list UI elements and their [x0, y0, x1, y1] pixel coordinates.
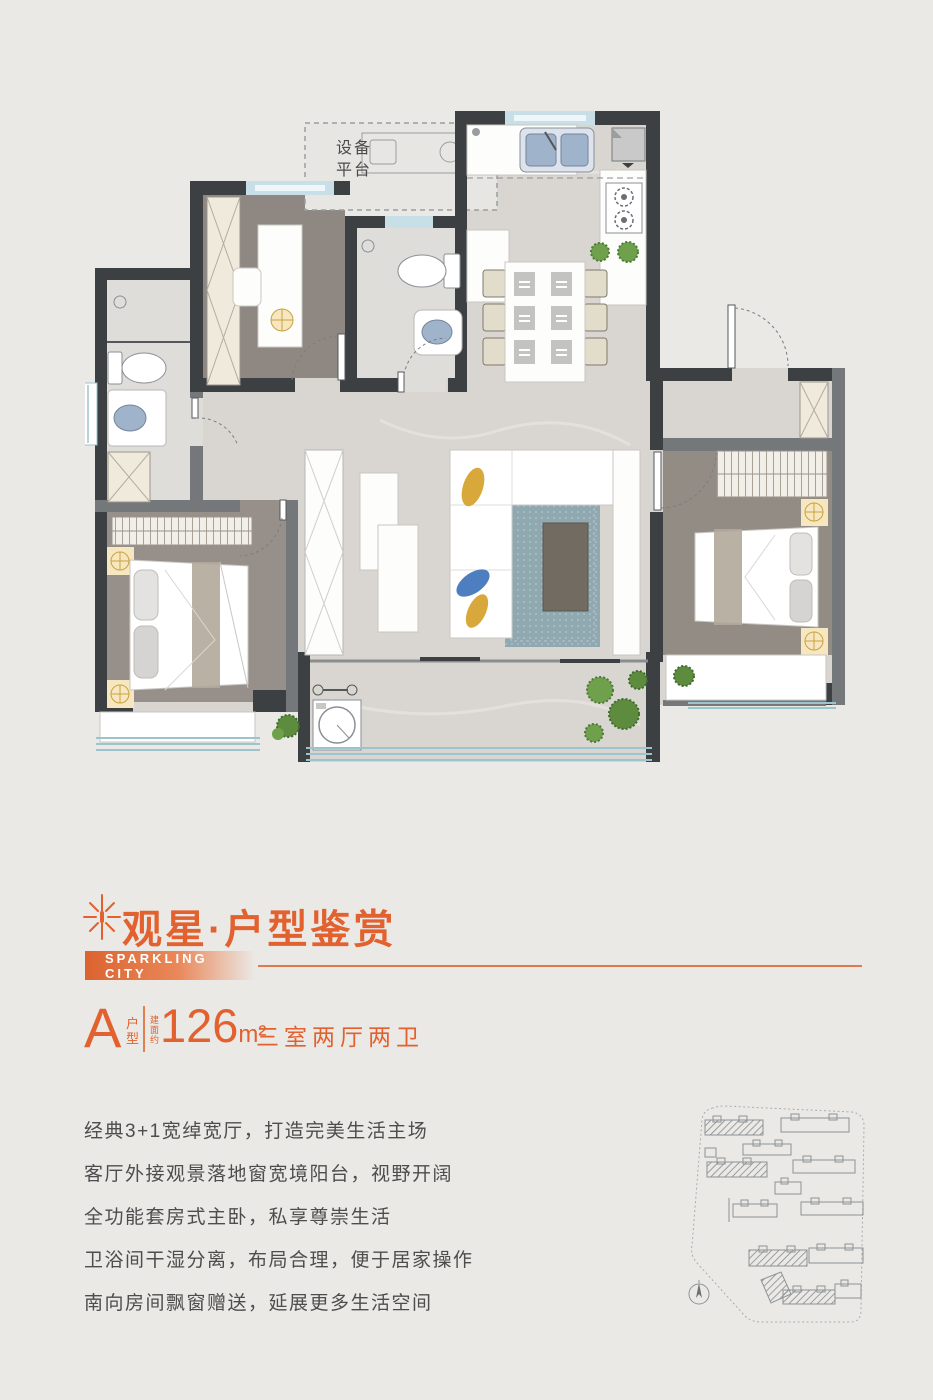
subtitle-text: SPARKLING CITY — [85, 951, 255, 981]
feature-item: 全功能套房式主卧，私享尊崇生活 — [84, 1206, 604, 1249]
bed — [695, 527, 818, 627]
page: { "colors": { "accent": "#E2612F", "rule… — [0, 0, 933, 1400]
desk-chair — [233, 268, 261, 306]
tv-cabinet — [613, 450, 640, 655]
washbasin-icon — [108, 390, 166, 446]
sparkle-icon — [80, 893, 124, 941]
coffee-table — [543, 523, 588, 611]
plant-icon — [618, 242, 638, 262]
platform-label-line1: 设备 — [336, 139, 372, 157]
unit-divider — [143, 1006, 145, 1052]
feature-list: 经典3+1宽绰宽厅，打造完美生活主场 客厅外接观景落地窗宽境阳台，视野开阔 全功… — [84, 1120, 604, 1335]
unit-type-letter: A — [84, 1000, 121, 1056]
lamp-icon — [271, 309, 293, 331]
feature-item: 南向房间飘窗赠送，延展更多生活空间 — [84, 1292, 604, 1335]
floor-plan: 设备 平台 — [85, 105, 880, 770]
platform-label-line2: 平台 — [336, 161, 372, 179]
bay-window — [96, 712, 260, 750]
blanket — [192, 562, 220, 688]
stove-icon — [606, 183, 642, 233]
pillow — [790, 580, 812, 622]
building-highlighted — [707, 1162, 767, 1177]
pillow — [134, 626, 158, 678]
plant-icon — [272, 715, 299, 740]
sideboard — [378, 525, 418, 632]
nightstand-lamp-icon — [801, 499, 828, 526]
unit-type-caption: 户型 — [126, 1016, 141, 1046]
hall-closet — [305, 450, 343, 655]
bath2-cabinet — [108, 452, 150, 502]
pillow — [790, 533, 812, 575]
feature-item: 卫浴间干湿分离，布局合理，便于居家操作 — [84, 1249, 604, 1292]
building-highlighted — [783, 1290, 835, 1304]
building-highlighted — [749, 1250, 807, 1266]
subtitle-banner: SPARKLING CITY — [85, 951, 255, 980]
unit-area: 126m² — [160, 1002, 266, 1049]
pillow — [134, 570, 158, 620]
shoe-cabinet — [800, 382, 828, 438]
feature-item: 客厅外接观景落地窗宽境阳台，视野开阔 — [84, 1163, 604, 1206]
page-title: 观星·户型鉴赏 — [122, 897, 396, 955]
area-prefix: 建面约 — [150, 1015, 160, 1045]
entry-door — [728, 305, 788, 368]
plant-icon — [591, 243, 609, 261]
site-buildings — [705, 1114, 863, 1304]
master-wardrobe — [717, 451, 827, 497]
drain-icon — [472, 128, 480, 136]
nightstand-lamp-icon — [801, 628, 828, 655]
bedroom2-wardrobe — [112, 517, 252, 545]
compass-icon — [689, 1280, 709, 1304]
kitchen-sink-icon — [520, 128, 594, 172]
unit-rooms: 三室两厅两卫 — [256, 1018, 424, 1052]
feature-item: 经典3+1宽绰宽厅，打造完美生活主场 — [84, 1120, 604, 1163]
blanket — [714, 529, 742, 625]
toilet-icon — [398, 254, 460, 288]
divider-line — [258, 965, 862, 967]
washbasin-icon — [414, 310, 462, 355]
toilet-icon — [108, 352, 166, 384]
site-plan — [683, 1098, 883, 1338]
bed — [130, 560, 248, 690]
plant-icon — [674, 666, 694, 686]
washing-machine-icon — [313, 700, 361, 750]
